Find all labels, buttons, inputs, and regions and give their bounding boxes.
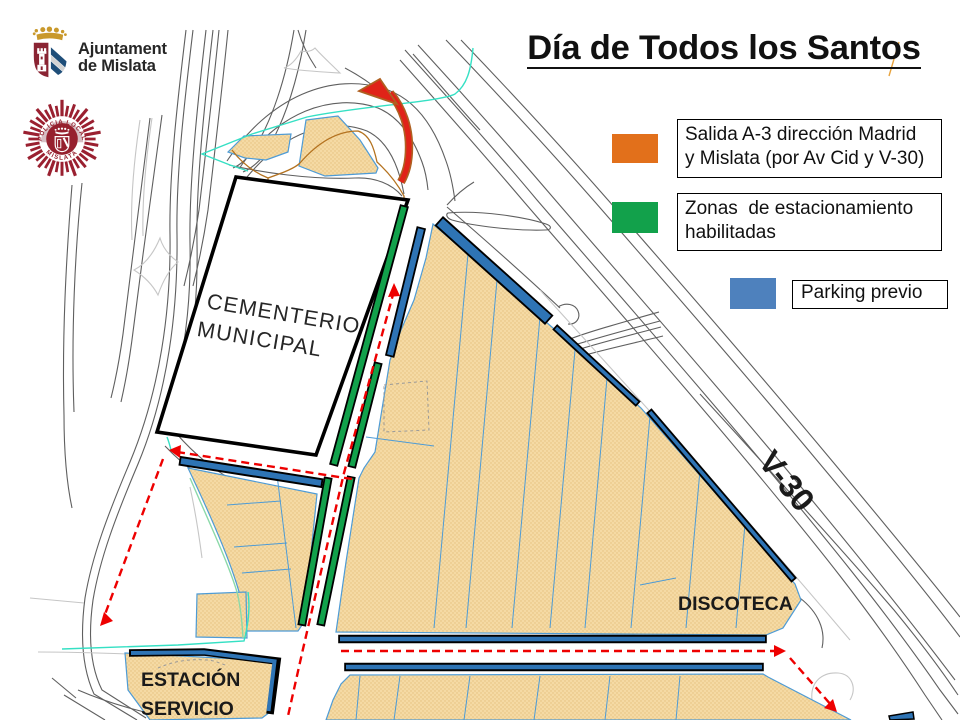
svg-text:V-30: V-30	[752, 444, 822, 519]
svg-text:DISCOTECA: DISCOTECA	[678, 593, 793, 615]
svg-text:SERVICIO: SERVICIO	[141, 698, 234, 720]
svg-text:ESTACIÓN: ESTACIÓN	[141, 667, 240, 691]
